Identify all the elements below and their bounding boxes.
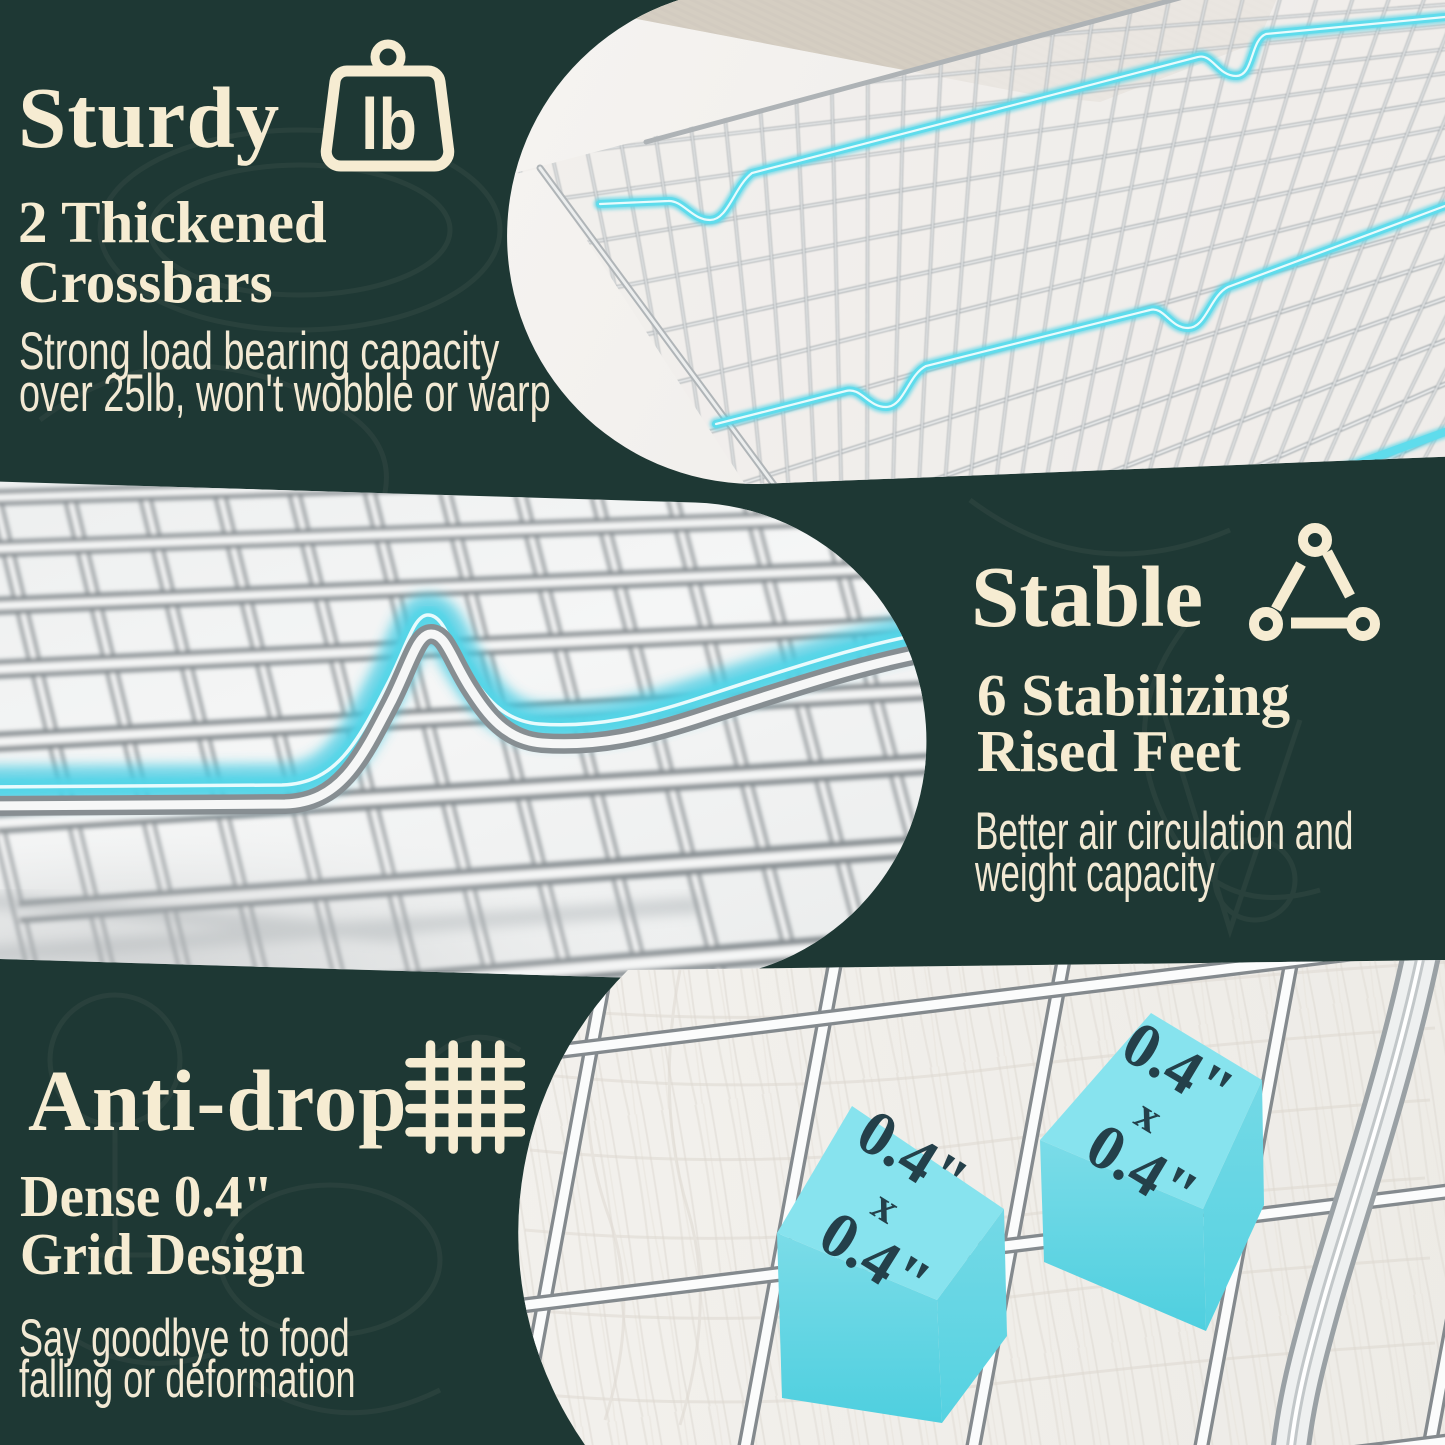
svg-text:lb: lb <box>361 85 417 165</box>
